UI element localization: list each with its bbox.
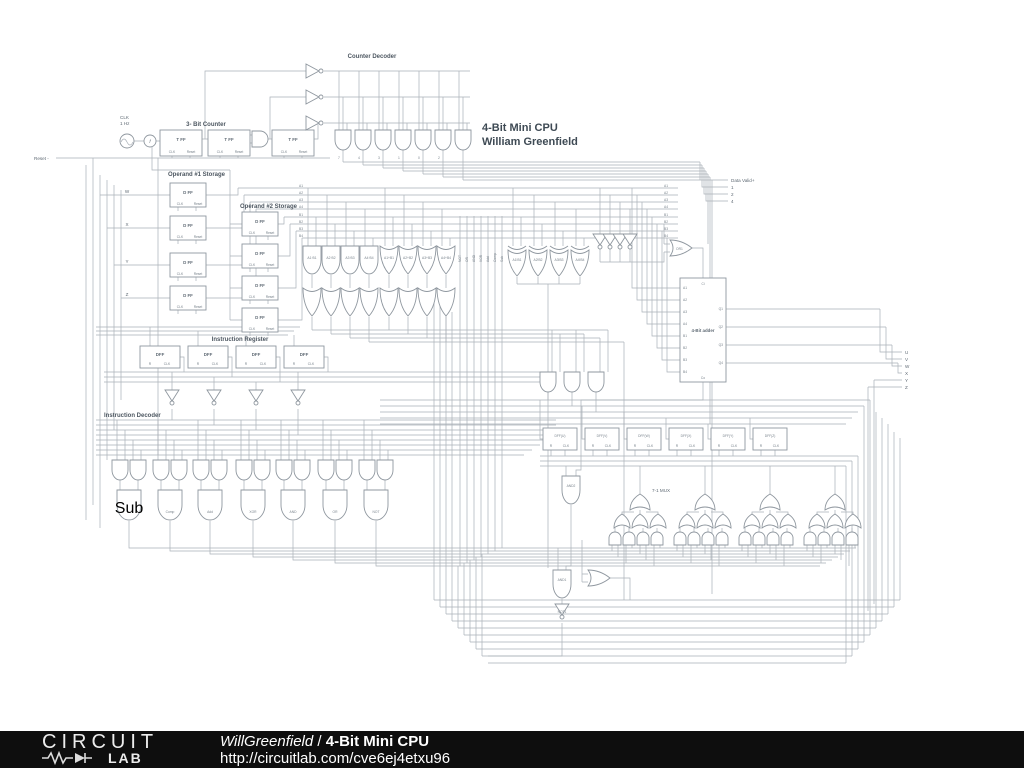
pin-clk: CLK (260, 362, 267, 366)
pin-reset: Reset (194, 235, 203, 239)
decoder-num: 4 (358, 156, 360, 160)
adder-pin-a4: A4 (683, 322, 687, 326)
logo-text-circuit: CIRCUIT (42, 734, 192, 750)
alu-not-gates (593, 234, 637, 249)
wires-ab-bus (238, 188, 678, 238)
wires-adder (576, 188, 902, 611)
author-link[interactable]: WillGreenfield (220, 733, 313, 750)
wires-mux (488, 466, 855, 656)
adder-pin-q2: Q2 (719, 325, 724, 329)
bus-label-b3: B3 (664, 227, 668, 231)
bus-label-b4: B4 (664, 234, 668, 238)
data-valid-bit: 1 (731, 185, 734, 190)
schematic-title: 4-Bit Mini CPU (482, 122, 558, 134)
or-gate-label: A3+B3 (422, 256, 432, 260)
schematic-author: William Greenfield (482, 136, 578, 148)
pin-clk: CLK (177, 272, 184, 276)
op-gate-sub: Sub (115, 500, 144, 517)
op-gate-and: AND (290, 510, 298, 514)
alu-mix-gates (303, 288, 455, 316)
wires-instruction-register (96, 327, 556, 435)
op-wire-label: Add (486, 256, 490, 262)
pin-reset: Reset (299, 150, 308, 154)
ir-dff-label: DFF (204, 352, 213, 357)
pin-reset: Reset (187, 150, 196, 154)
mux-label: 7-1 MUX (652, 488, 670, 493)
pin-clk: CLK (249, 327, 256, 331)
dff-label: D FF (255, 251, 265, 256)
logo-text-lab: LAB (108, 750, 143, 766)
and-gate-label: A3·B3 (345, 256, 354, 260)
tff-label: T FF (176, 137, 186, 142)
result-dff-label: DFF(W) (638, 434, 650, 438)
decoder-num: 7 (338, 156, 340, 160)
output-w: W (905, 364, 910, 369)
bus-label-a3: A3 (664, 198, 668, 202)
adder-pin-co: Co (701, 376, 705, 380)
or2-gate (588, 570, 610, 586)
ir-dff-label: DFF (156, 352, 165, 357)
or-gate-label: A2+B2 (403, 256, 413, 260)
pin-reset: Reset (194, 305, 203, 309)
adder-pin-b3: B3 (683, 358, 687, 362)
dff-label: D FF (255, 283, 265, 288)
wires-counter-decoder (339, 71, 728, 594)
alu-and-gates (303, 246, 378, 274)
op-gate-not: NOT (373, 510, 380, 514)
result-dff-label: DFF(Z) (765, 434, 776, 438)
circuit-url[interactable]: http://circuitlab.com/cve6ej4etxu96 (220, 750, 450, 767)
result-input-gates (540, 372, 604, 392)
xor-gate-label: A4!B4 (576, 258, 585, 262)
decoder-and-gates (335, 130, 471, 150)
input-label-x: X (125, 222, 128, 227)
instruction-decoder-label: Instruction Decoder (104, 413, 161, 419)
dff-label: D FF (183, 293, 193, 298)
bus-label-a2: A2 (664, 191, 668, 195)
xor-gate-label: A1!B1 (513, 258, 522, 262)
tff-3 (272, 130, 314, 156)
data-valid-bit: 2 (731, 192, 734, 197)
op-gate-xor: XOR (249, 510, 257, 514)
operand1-label: Operand #1 Storage (168, 172, 226, 178)
pin-clk: CLK (773, 444, 780, 448)
bus-label-a4: A4 (664, 205, 668, 209)
pin-reset: Reset (266, 263, 275, 267)
adder-pin-q3: Q3 (719, 343, 724, 347)
pin-clk: CLK (605, 444, 612, 448)
xor-gate-label: A3!B3 (555, 258, 564, 262)
input-label-y: Y (125, 259, 128, 264)
pin-clk: CLK (249, 263, 256, 267)
bus-label-b4: B4 (299, 234, 303, 238)
and2-gate (562, 476, 580, 504)
pin-clk: CLK (177, 202, 184, 206)
tff-label: T FF (288, 137, 298, 142)
pin-reset: Reset (194, 202, 203, 206)
or-gate-label: A4+B4 (441, 256, 451, 260)
ir-dff-label: DFF (252, 352, 261, 357)
pin-clk: CLK (169, 150, 176, 154)
circuit-canvas: 4-Bit Mini CPU William Greenfield CLK 1 … (0, 0, 1024, 731)
data-valid-label: Data Valid+ (731, 178, 755, 183)
counter-label: 3- Bit Counter (186, 122, 226, 128)
reset-label: Reset - (34, 156, 49, 161)
input-label-w: W (125, 189, 130, 194)
bus-label-b1: B1 (664, 213, 668, 217)
operand2-label: Operand #2 Storage (240, 204, 298, 210)
counter-decoder-label: Counter Decoder (348, 54, 397, 60)
decoder-op-gates (117, 490, 388, 520)
output-x: X (905, 371, 908, 376)
and-gate-label: A1·B1 (307, 256, 316, 260)
bus-label-a1: A1 (664, 184, 668, 188)
output-v: V (905, 357, 909, 362)
pin-clk: CLK (249, 231, 256, 235)
or1-label: OR1 (676, 247, 683, 251)
pin-clk: CLK (647, 444, 654, 448)
pin-clk: CLK (177, 235, 184, 239)
dff-label: D FF (183, 223, 193, 228)
op-gate-comp: Comp (166, 510, 175, 514)
and1-gate (553, 570, 571, 598)
adder-pin-q1: Q1 (719, 307, 724, 311)
not1-label: NOT1 (558, 610, 567, 614)
pin-reset: Reset (266, 295, 275, 299)
circuitlab-logo[interactable]: CIRCUIT LAB (42, 734, 192, 765)
and-gate-label: A4·B4 (364, 256, 373, 260)
op-wire-label: OR (465, 256, 469, 262)
footer-meta: WillGreenfield / 4-Bit Mini CPU http://c… (220, 733, 450, 767)
ir-dff-label: DFF (300, 352, 309, 357)
pin-clk: CLK (563, 444, 570, 448)
footer-title-line: WillGreenfield / 4-Bit Mini CPU (220, 733, 450, 750)
bus-label-a4: A4 (299, 205, 303, 209)
ir-not-gates (165, 390, 305, 405)
or-gate-label: A1+B1 (384, 256, 394, 260)
instruction-register-label: Instruction Register (212, 337, 269, 343)
data-valid-bit: 4 (731, 199, 734, 204)
decoder-num: 1 (398, 156, 400, 160)
operand2-dffs (242, 212, 278, 332)
decoder-num: 0 (418, 156, 420, 160)
adder-pin-b4: B4 (683, 370, 687, 374)
counter-and-gate (252, 131, 268, 147)
decoder-num: 3 (378, 156, 380, 160)
dff-label: D FF (183, 190, 193, 195)
op-wire-label: AND (472, 254, 476, 262)
adder-label: 4-Bit adder (692, 328, 715, 333)
adder-pin-a3: A3 (683, 310, 687, 314)
xor-gate-label: A2!B2 (534, 258, 543, 262)
and2-label: AND2 (567, 484, 576, 488)
pin-clk: CLK (308, 362, 315, 366)
circuitlab-export-page: 4-Bit Mini CPU William Greenfield CLK 1 … (0, 0, 1024, 768)
adder-pin-a1: A1 (683, 286, 687, 290)
dff-label: D FF (255, 219, 265, 224)
adder-pin-a2: A2 (683, 298, 687, 302)
separator: / (317, 733, 321, 750)
op-wire-label: Sub (500, 256, 504, 262)
pin-clk: CLK (731, 444, 738, 448)
pin-reset: Reset (266, 231, 275, 235)
pin-clk: CLK (281, 150, 288, 154)
pin-reset: Reset (194, 272, 203, 276)
adder-pin-ci: Ci (701, 282, 704, 286)
result-dff-label: DFF(X) (681, 434, 692, 438)
decoder-pair-gates (112, 460, 393, 480)
output-y: Y (905, 378, 908, 383)
decoder-num: 2 (438, 156, 440, 160)
adder-pin-q4: Q4 (719, 361, 724, 365)
pin-clk: CLK (249, 295, 256, 299)
bus-label-a2: A2 (299, 191, 303, 195)
pin-clk: CLK (212, 362, 219, 366)
dff-label: D FF (183, 260, 193, 265)
pin-clk: CLK (217, 150, 224, 154)
input-label-z: Z (126, 292, 129, 297)
adder-pin-b1: B1 (683, 334, 687, 338)
bus-label-a1: A1 (299, 184, 303, 188)
decoder-buffer-icon (306, 64, 323, 130)
output-u: U (905, 350, 908, 355)
mux-or-trees (609, 494, 861, 545)
alu-or-gates (380, 246, 455, 274)
op-gate-add: Add (207, 510, 213, 514)
pin-clk: CLK (177, 305, 184, 309)
op-gate-or: OR (333, 510, 339, 514)
result-dff-label: DFF(U) (555, 434, 566, 438)
resistor-diode-icon (42, 751, 108, 765)
op-wire-label: Comp (493, 253, 497, 262)
circuit-title: 4-Bit Mini CPU (326, 733, 429, 750)
tff-2 (208, 130, 250, 156)
bus-label-b2: B2 (664, 220, 668, 224)
bus-label-a3: A3 (299, 198, 303, 202)
bus-label-b2: B2 (299, 220, 303, 224)
and-gate-label: A2·B2 (326, 256, 335, 260)
result-dff-label: DFF(V) (597, 434, 608, 438)
pin-reset: Reset (235, 150, 244, 154)
bus-label-b1: B1 (299, 213, 303, 217)
footer-bar: CIRCUIT LAB WillGreenfield / 4-Bit Mini … (0, 731, 1024, 768)
bus-label-b3: B3 (299, 227, 303, 231)
pin-clk: CLK (689, 444, 696, 448)
clk-freq-label: 1 Hz (120, 121, 130, 126)
clk-label: CLK (120, 115, 130, 120)
tff-1 (160, 130, 202, 156)
pin-reset: Reset (266, 327, 275, 331)
result-dff-label: DFF(Y) (723, 434, 734, 438)
pin-clk: CLK (164, 362, 171, 366)
adder-pin-b2: B2 (683, 346, 687, 350)
op-wire-label: XOR (479, 254, 483, 262)
tff-label: T FF (224, 137, 234, 142)
op-wire-label: NOT (458, 255, 462, 262)
dff-label: D FF (255, 315, 265, 320)
and1-label: AND1 (558, 578, 567, 582)
output-z: Z (905, 385, 908, 390)
